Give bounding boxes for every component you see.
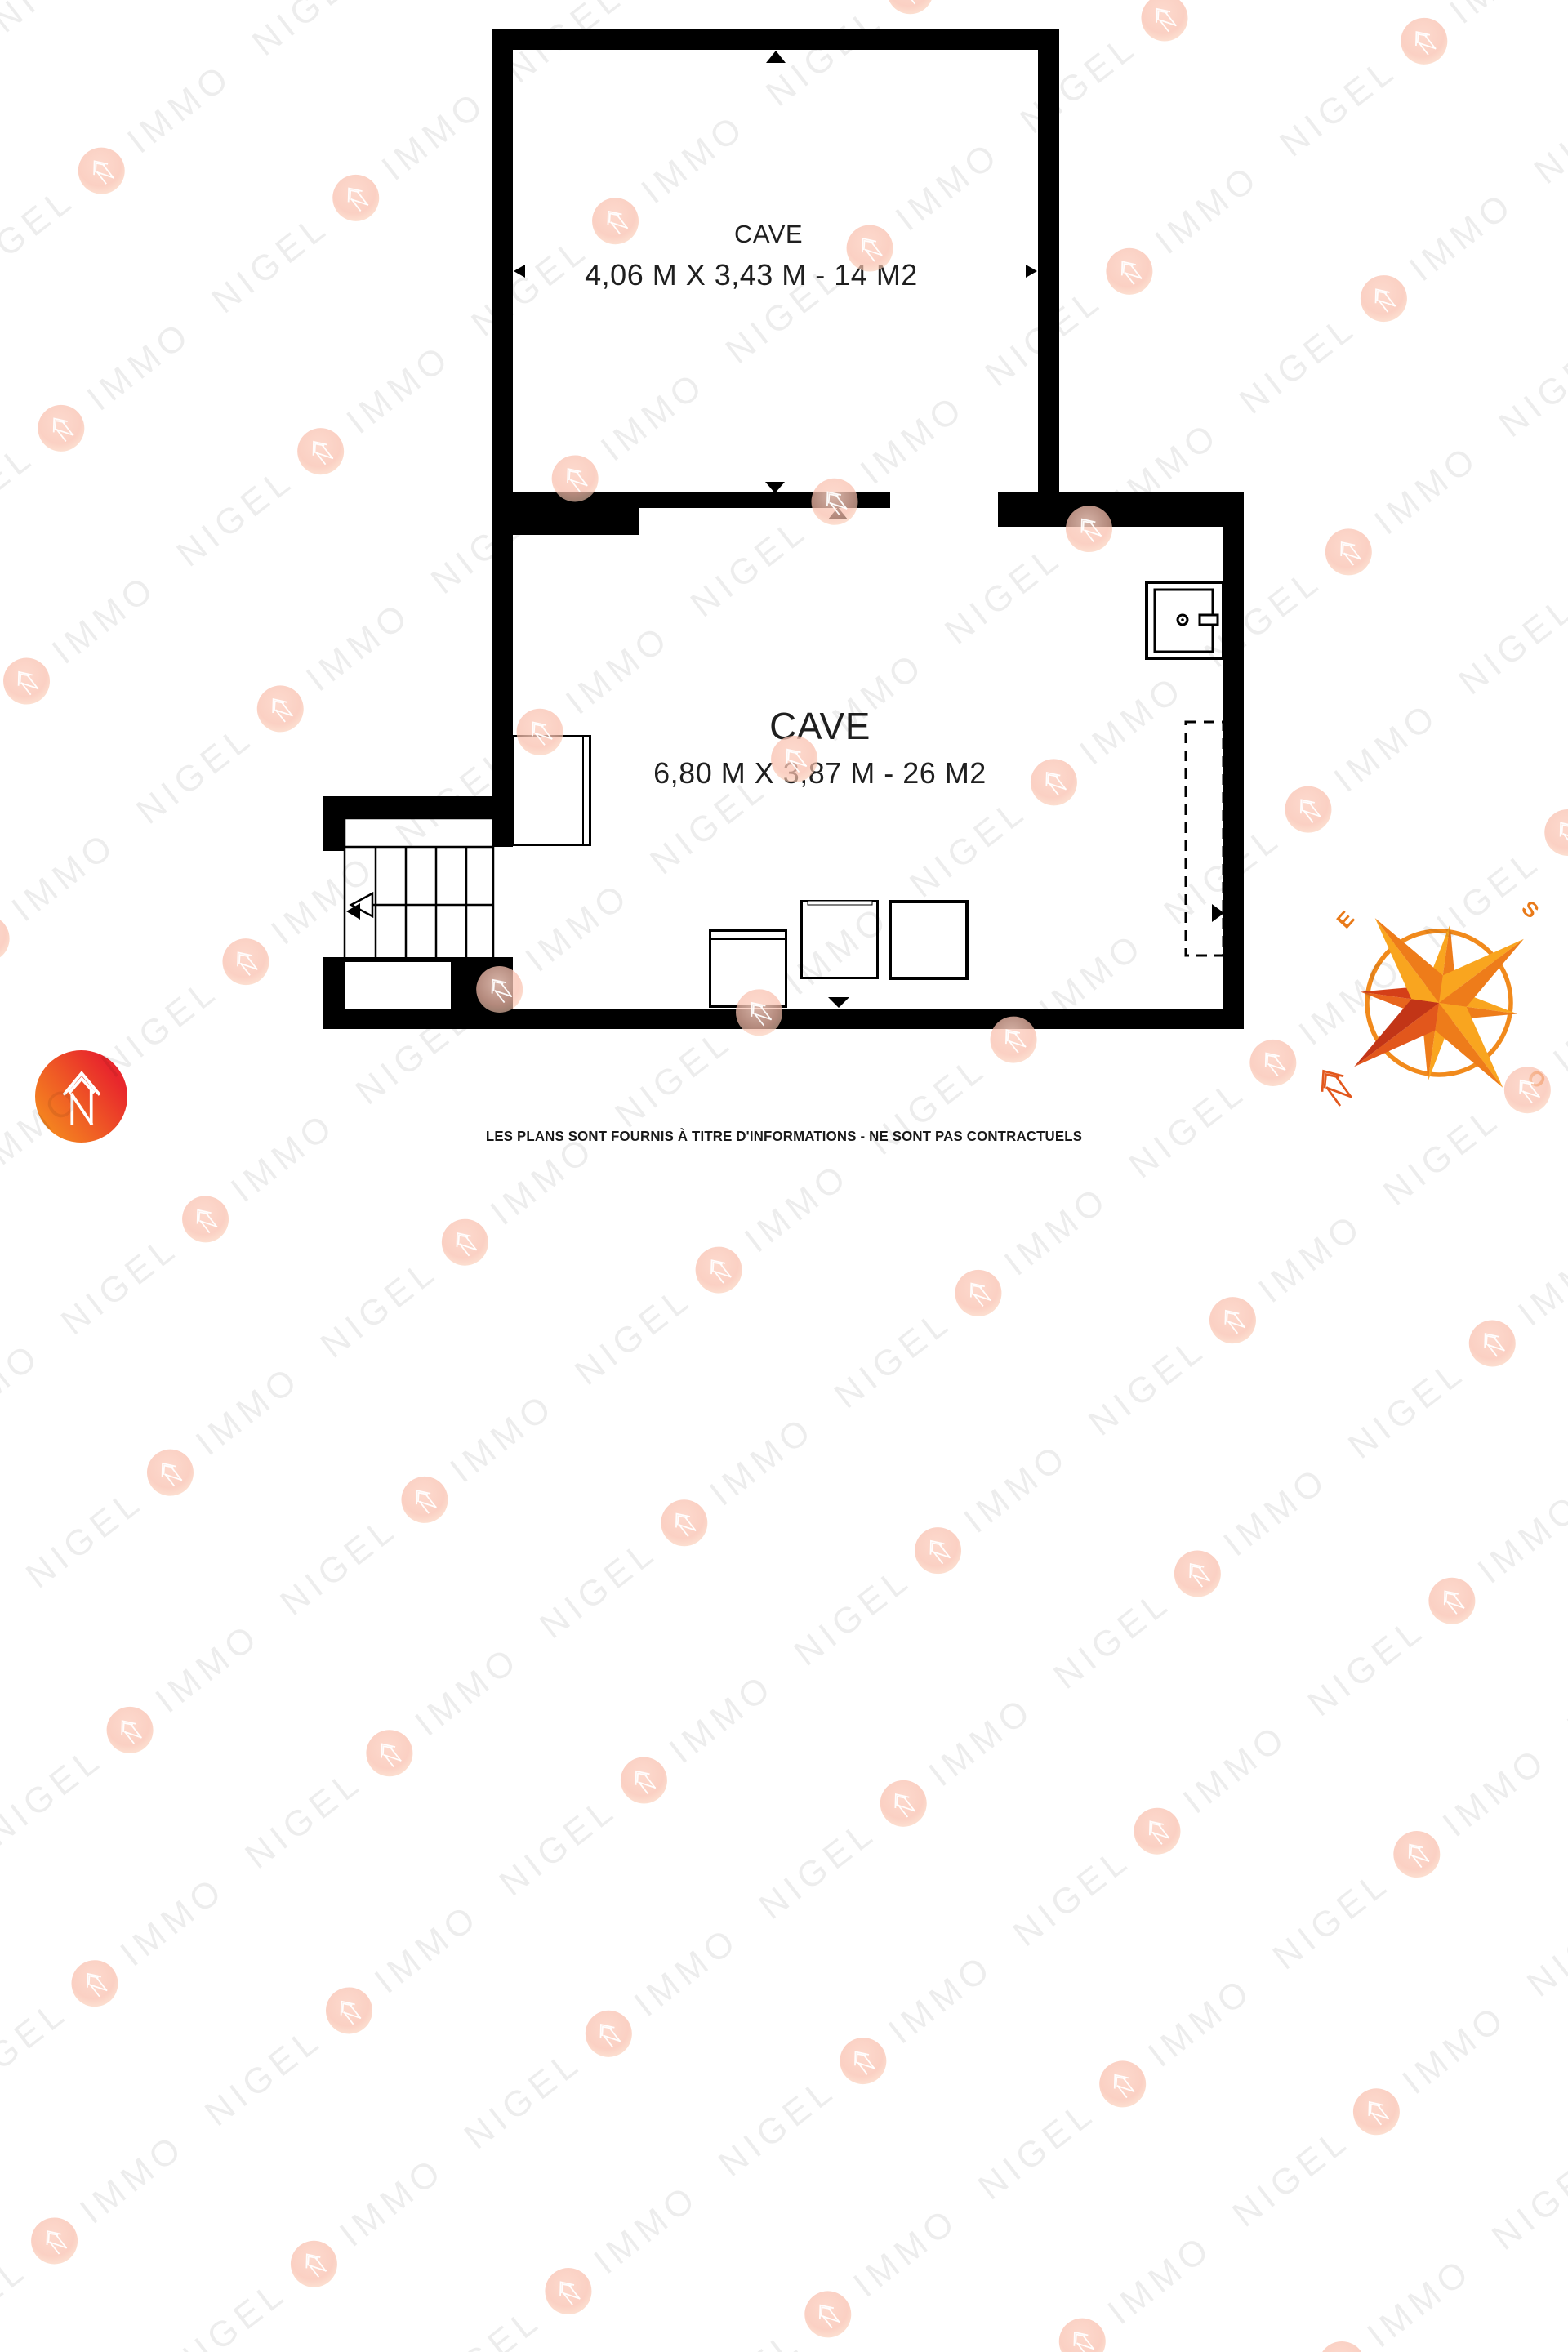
watermark-unit: NIGELIMMO bbox=[1263, 1737, 1557, 1980]
watermark-badge-icon bbox=[432, 1209, 497, 1275]
watermark-unit: NIGELIMMO bbox=[826, 1175, 1120, 1419]
watermark-unit: NIGELIMMO bbox=[490, 1664, 784, 1907]
watermark-badge-icon bbox=[281, 2231, 346, 2296]
watermark-badge-icon bbox=[1049, 2309, 1115, 2352]
watermark-text-left: NIGEL bbox=[786, 1558, 919, 1674]
watermark-unit: NIGELIMMO bbox=[0, 1613, 270, 1856]
marker-right-wall bbox=[1026, 265, 1037, 278]
room-bottom-dimensions: 6,80 M X 3,87 M - 26 M2 bbox=[653, 756, 987, 791]
cupboard bbox=[513, 737, 590, 845]
watermark-text-left: NIGEL bbox=[273, 1508, 405, 1624]
watermark-text-right: IMMO bbox=[443, 1385, 563, 1491]
wall-bottom-room-left bbox=[492, 508, 513, 847]
watermark-text-right: IMMO bbox=[73, 2126, 193, 2232]
appliance-left bbox=[710, 931, 786, 1007]
watermark-text-right: IMMO bbox=[846, 2199, 966, 2305]
watermark-unit: NIGELIMMO bbox=[675, 2197, 969, 2352]
watermark-badge-icon bbox=[946, 1260, 1011, 1325]
watermark-unit: NIGELIMMO bbox=[456, 1917, 750, 2160]
watermark-unit: NIGELIMMO bbox=[1298, 1483, 1568, 1726]
watermark-unit: NIGELIMMO bbox=[1004, 1713, 1298, 1957]
watermark-text-left: NIGEL bbox=[1301, 1609, 1433, 1725]
logo-nhouse-icon bbox=[56, 1067, 107, 1127]
watermark-text-right: IMMO bbox=[1436, 1739, 1556, 1845]
watermark-text-left: NIGEL bbox=[1266, 1862, 1398, 1978]
watermark-text-right: IMMO bbox=[408, 1638, 528, 1744]
watermark-badge-icon bbox=[391, 1467, 457, 1532]
watermark-badge-icon bbox=[871, 1771, 936, 1836]
watermark-badge-icon bbox=[137, 1440, 203, 1505]
wall-top-room-top bbox=[492, 29, 1059, 50]
compass-label-west: O bbox=[1522, 1064, 1551, 1094]
marker-top-wall bbox=[766, 51, 786, 63]
watermark-text-right: IMMO bbox=[1360, 2250, 1480, 2352]
watermark-badge-icon bbox=[1343, 2078, 1409, 2144]
watermark-text-right: IMMO bbox=[881, 1946, 1001, 2052]
watermark-text-right: IMMO bbox=[662, 1665, 782, 1771]
dashed-storage-zone bbox=[1186, 722, 1223, 955]
staircase bbox=[345, 818, 493, 962]
watermark-unit: NIGELIMMO bbox=[710, 1944, 1004, 2187]
wall-stair-left-upper bbox=[323, 796, 345, 851]
sink bbox=[1147, 582, 1223, 658]
watermark-badge-icon bbox=[795, 2282, 860, 2347]
watermark-text-right: IMMO bbox=[1141, 1969, 1261, 2075]
watermark-text-left: NIGEL bbox=[1006, 1839, 1138, 1955]
watermark-text-left: NIGEL bbox=[19, 1481, 151, 1597]
watermark-unit: NIGELIMMO bbox=[161, 2147, 455, 2352]
watermark-unit: NIGELIMMO bbox=[785, 1433, 1079, 1677]
watermark-badge-icon bbox=[1384, 1821, 1450, 1886]
watermark-text-left: NIGEL bbox=[676, 2323, 808, 2352]
watermark-unit: NIGELIMMO bbox=[929, 2225, 1223, 2352]
watermark-text-left: NIGEL bbox=[314, 1250, 446, 1366]
wall-shared-right bbox=[998, 492, 1244, 527]
watermark-text-left: NIGEL bbox=[930, 2350, 1062, 2352]
watermark-text-right: IMMO bbox=[0, 1334, 49, 1441]
watermark-unit: NIGELIMMO bbox=[415, 2174, 709, 2352]
compass-north-logo-icon bbox=[1313, 1064, 1355, 1108]
watermark-text-left: NIGEL bbox=[1560, 1632, 1568, 1748]
furniture bbox=[513, 582, 1224, 1007]
watermark-text-right: IMMO bbox=[1216, 1459, 1336, 1565]
watermark-text-left: NIGEL bbox=[1520, 1889, 1568, 2005]
watermark-text-left: NIGEL bbox=[711, 2069, 844, 2185]
watermark-text-right: IMMO bbox=[956, 1435, 1076, 1541]
watermark-badge-icon bbox=[1125, 1798, 1190, 1864]
watermark-text-right: IMMO bbox=[189, 1357, 309, 1463]
watermark-text-right: IMMO bbox=[586, 2176, 706, 2283]
watermark-text-right: IMMO bbox=[1101, 2226, 1221, 2332]
watermark-text-right: IMMO bbox=[702, 1408, 822, 1514]
watermark-text-right: IMMO bbox=[1176, 1716, 1296, 1822]
watermark-badge-icon bbox=[172, 1187, 238, 1252]
watermark-text-left: NIGEL bbox=[198, 2019, 330, 2135]
wall-bottom-room-right bbox=[1223, 492, 1244, 1029]
watermark-text-left: NIGEL bbox=[0, 2249, 36, 2352]
watermark-unit: NIGELIMMO bbox=[0, 1332, 51, 1575]
watermark-text-right: IMMO bbox=[921, 1689, 1041, 1795]
watermark-badge-icon bbox=[686, 1236, 751, 1302]
watermark-badge-icon bbox=[830, 2028, 895, 2093]
under-stair-closet bbox=[345, 962, 451, 1009]
floor-plan-page: { "page": {"width": 1920, "height": 1440… bbox=[0, 0, 1568, 1176]
compass-rose: S E O bbox=[1300, 864, 1568, 1142]
room-bottom-name: CAVE bbox=[769, 704, 871, 748]
watermark-unit: NIGELIMMO bbox=[1483, 2017, 1568, 2261]
compass-label-south: S bbox=[1517, 895, 1544, 923]
room-top-name: CAVE bbox=[734, 220, 803, 249]
watermark-unit: NIGELIMMO bbox=[271, 1383, 565, 1626]
watermark-text-left: NIGEL bbox=[1046, 1581, 1178, 1697]
watermark-text-left: NIGEL bbox=[1081, 1328, 1214, 1444]
watermark-unit: NIGELIMMO bbox=[1339, 1226, 1568, 1469]
watermark-text-left: NIGEL bbox=[163, 2272, 295, 2352]
watermark-text-left: NIGEL bbox=[751, 1811, 884, 1927]
watermark-text-left: NIGEL bbox=[54, 1227, 186, 1343]
wall-stair-top bbox=[323, 796, 513, 818]
watermark-text-right: IMMO bbox=[1251, 1205, 1371, 1312]
watermark-text-left: NIGEL bbox=[0, 1991, 76, 2107]
wall-top-room-right bbox=[1038, 29, 1059, 527]
watermark-badge-icon bbox=[1165, 1540, 1230, 1606]
watermark-unit: NIGELIMMO bbox=[1223, 1994, 1517, 2238]
watermark-text-left: NIGEL bbox=[416, 2299, 549, 2352]
marker-shared-wall-down bbox=[765, 482, 785, 493]
watermark-badge-icon bbox=[1459, 1310, 1525, 1375]
watermark-text-right: IMMO bbox=[1471, 1486, 1568, 1592]
watermark-unit: NIGELIMMO bbox=[1080, 1203, 1374, 1446]
watermark-badge-icon bbox=[906, 1517, 971, 1583]
watermark-badge-icon bbox=[97, 1697, 163, 1762]
watermark-text-right: IMMO bbox=[0, 1588, 14, 1694]
watermark-badge-icon bbox=[62, 1950, 127, 2016]
watermark-unit: NIGELIMMO bbox=[1558, 1507, 1568, 1750]
watermark-unit: NIGELIMMO bbox=[0, 2123, 195, 2352]
watermark-badge-icon bbox=[1419, 1568, 1485, 1633]
marker-bottom-wall bbox=[828, 997, 849, 1008]
watermark-text-right: IMMO bbox=[997, 1178, 1117, 1284]
watermark-unit: NIGELIMMO bbox=[1188, 2247, 1482, 2352]
wall-shared-pillar bbox=[492, 492, 639, 535]
watermark-text-right: IMMO bbox=[1511, 1228, 1568, 1334]
watermark-text-left: NIGEL bbox=[827, 1301, 960, 1417]
appliance-middle bbox=[802, 901, 878, 978]
watermark-unit: NIGELIMMO bbox=[531, 1405, 825, 1649]
watermark-unit: NIGELIMMO bbox=[969, 1967, 1263, 2210]
watermark-text-right: IMMO bbox=[114, 1869, 234, 1975]
watermark-text-right: IMMO bbox=[627, 1918, 747, 2025]
watermark-badge-icon bbox=[536, 2258, 601, 2323]
watermark-text-right: IMMO bbox=[367, 1895, 488, 2002]
watermark-text-left: NIGEL bbox=[0, 1738, 111, 1854]
watermark-unit: NIGELIMMO bbox=[0, 1585, 16, 1829]
watermark-text-right: IMMO bbox=[332, 2149, 452, 2255]
watermark-badge-icon bbox=[21, 2208, 87, 2274]
watermark-badge-icon bbox=[356, 1720, 421, 1785]
disclaimer-text: LES PLANS SONT FOURNIS À TITRE D'INFORMA… bbox=[486, 1128, 1082, 1145]
watermark-text-left: NIGEL bbox=[457, 2042, 590, 2158]
watermark-text-left: NIGEL bbox=[1341, 1352, 1473, 1468]
watermark-unit: NIGELIMMO bbox=[17, 1356, 311, 1599]
watermark-badge-icon bbox=[1089, 2051, 1155, 2117]
watermark-unit: NIGELIMMO bbox=[1045, 1456, 1339, 1699]
marker-left-wall bbox=[514, 265, 525, 278]
watermark-text-left: NIGEL bbox=[1485, 2143, 1568, 2259]
watermark-text-right: IMMO bbox=[148, 1615, 268, 1722]
watermark-text-left: NIGEL bbox=[568, 1278, 700, 1394]
agency-logo bbox=[35, 1050, 127, 1143]
watermark-text-left: NIGEL bbox=[1225, 2119, 1357, 2235]
watermark-text-left: NIGEL bbox=[532, 1531, 665, 1647]
watermark-unit: NIGELIMMO bbox=[196, 1893, 490, 2136]
watermark-unit: NIGELIMMO bbox=[1518, 1764, 1568, 2007]
watermark-badge-icon bbox=[611, 1748, 676, 1813]
appliance-right bbox=[890, 902, 967, 978]
watermark-badge-icon bbox=[316, 1978, 381, 2043]
watermark-unit: NIGELIMMO bbox=[750, 1686, 1044, 1930]
wall-top-room-left bbox=[492, 29, 513, 508]
watermark-badge-icon bbox=[1309, 2332, 1374, 2352]
watermark-badge-icon bbox=[576, 2001, 641, 2066]
watermark-unit: NIGELIMMO bbox=[566, 1152, 860, 1396]
marker-shared-wall-up bbox=[828, 507, 848, 519]
watermark-text-left: NIGEL bbox=[971, 2092, 1103, 2208]
watermark-text-left: NIGEL bbox=[238, 1762, 370, 1878]
room-top-dimensions: 4,06 M X 3,43 M - 14 M2 bbox=[585, 258, 918, 292]
watermark-badge-icon bbox=[651, 1490, 716, 1556]
compass-label-east: E bbox=[1331, 906, 1359, 933]
watermark-text-right: IMMO bbox=[1395, 1997, 1515, 2103]
watermark-unit: NIGELIMMO bbox=[0, 1866, 235, 2109]
watermark-badge-icon bbox=[1200, 1287, 1265, 1352]
watermark-unit: NIGELIMMO bbox=[236, 1636, 530, 1879]
watermark-text-left: NIGEL bbox=[492, 1788, 625, 1904]
